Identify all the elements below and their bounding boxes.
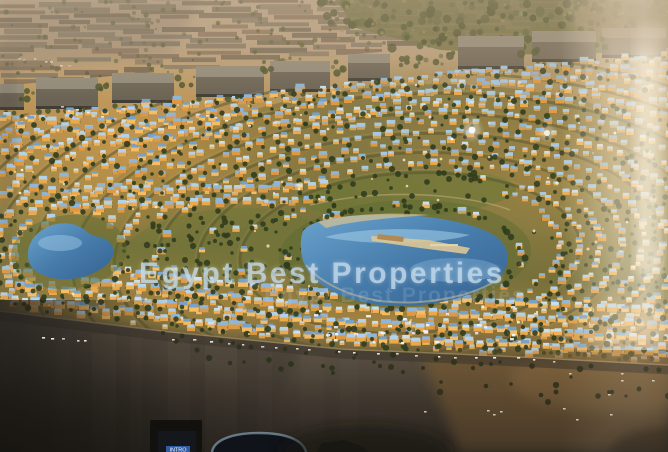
svg-text:Egypt Best Properties: Egypt Best Properties xyxy=(139,257,505,290)
svg-text:INTRO: INTRO xyxy=(169,448,187,452)
